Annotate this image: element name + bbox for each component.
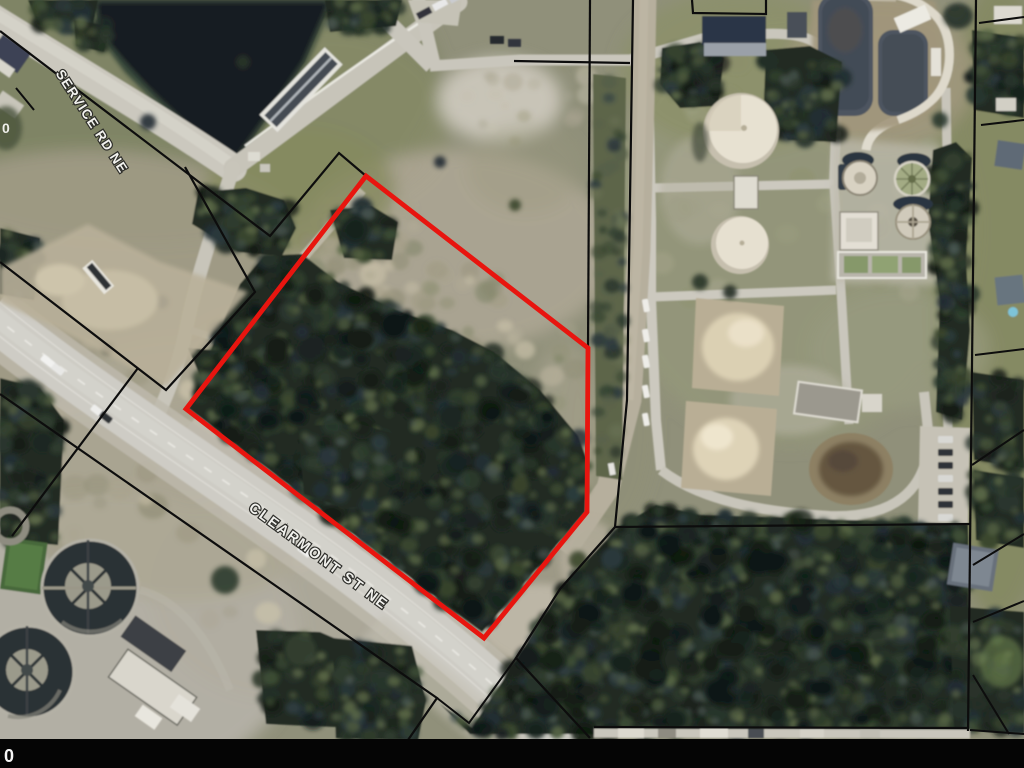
svg-text:0: 0 <box>2 120 10 136</box>
svg-text:0: 0 <box>4 746 14 766</box>
